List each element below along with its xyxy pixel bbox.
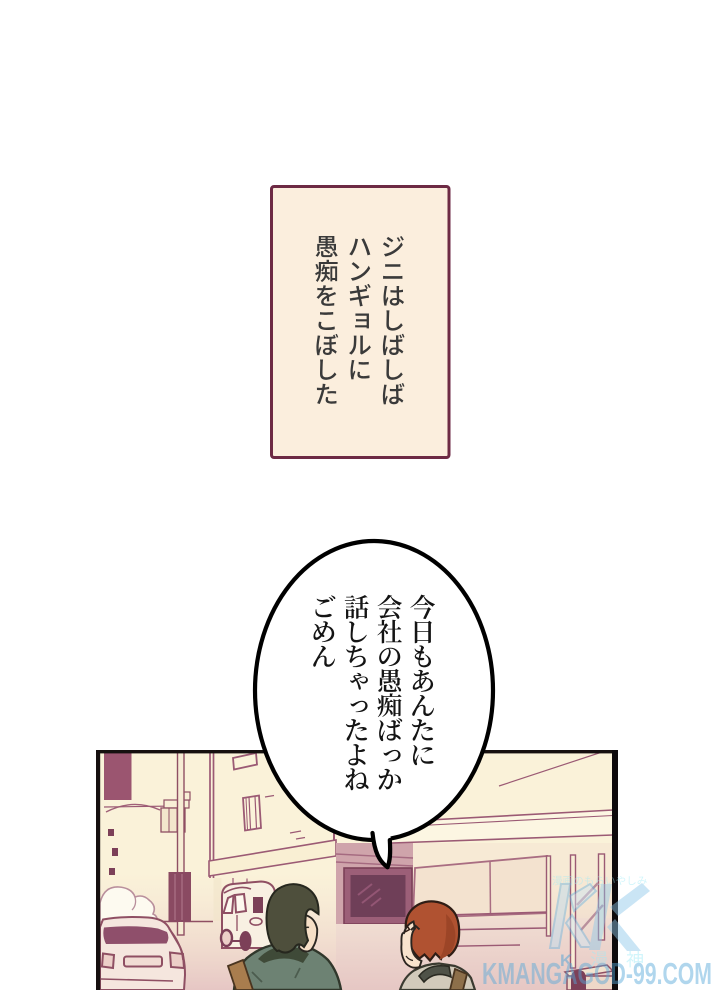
svg-text:KMANGAGOD-99.COM: KMANGAGOD-99.COM [482, 956, 712, 990]
